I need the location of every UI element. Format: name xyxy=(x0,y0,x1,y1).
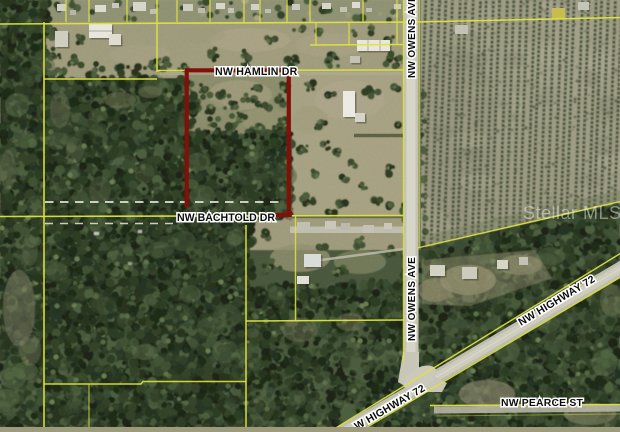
svg-text:Stellar MLS: Stellar MLS xyxy=(523,203,620,223)
